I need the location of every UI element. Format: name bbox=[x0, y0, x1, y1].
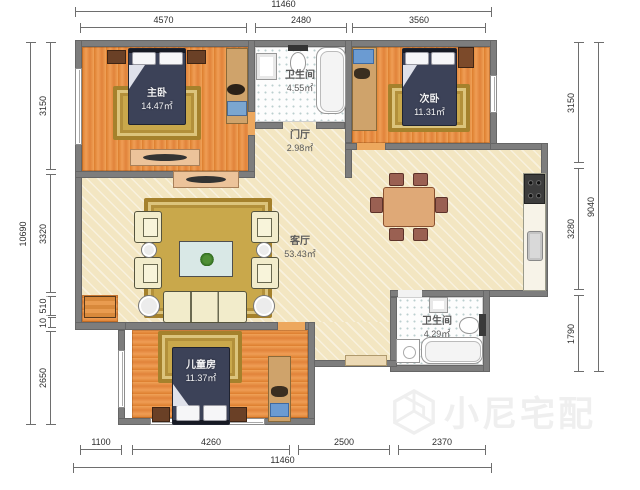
bath2-toilet-tank bbox=[479, 314, 486, 336]
dim-top-seg-2: 2480 bbox=[255, 27, 347, 28]
bath2-door-threshold bbox=[398, 290, 422, 297]
dim-right-overall: 9040 bbox=[598, 42, 599, 372]
dim-right-seg-2-value: 3280 bbox=[566, 217, 576, 241]
wall-kitchen-top bbox=[490, 143, 548, 150]
kids-nightstand-right bbox=[229, 407, 247, 422]
wall-second-bottom-b bbox=[385, 143, 497, 150]
wall-kids-top-a bbox=[125, 322, 278, 330]
kitchen-sink bbox=[527, 231, 543, 261]
kids-door-threshold bbox=[278, 322, 305, 330]
watermark-text: 小尼宅配 bbox=[444, 386, 596, 437]
second-wardrobe-item bbox=[354, 68, 370, 79]
washing-machine bbox=[396, 339, 420, 363]
second-door-threshold bbox=[357, 143, 385, 150]
kids-left-window bbox=[118, 350, 125, 408]
second-bed bbox=[402, 48, 457, 126]
master-nightstand-right bbox=[187, 50, 206, 64]
dim-top-seg-1-value: 4570 bbox=[151, 15, 175, 25]
second-pillow-right bbox=[431, 52, 455, 65]
kitchen-stove bbox=[524, 174, 545, 204]
kids-wardrobe-item bbox=[271, 386, 288, 397]
dim-left-seg-5: 2650 bbox=[50, 331, 51, 425]
armchair-bottom-right bbox=[251, 257, 279, 289]
dining-chair-bottom-right bbox=[413, 228, 428, 241]
second-pillow-left bbox=[405, 52, 429, 65]
bath-top-bathtub-inner bbox=[320, 51, 344, 112]
wall-master-right-upper bbox=[248, 40, 255, 112]
corner-table-left bbox=[138, 295, 160, 317]
master-pillow-right bbox=[159, 52, 183, 65]
master-tv bbox=[143, 154, 187, 161]
bath-top-toilet bbox=[290, 52, 306, 73]
master-pillow-left bbox=[132, 52, 156, 65]
kids-bed bbox=[172, 347, 230, 425]
master-desk-chair bbox=[227, 84, 245, 95]
watermark: 小尼宅配 bbox=[390, 386, 596, 437]
dim-top-seg-3: 3560 bbox=[352, 27, 486, 28]
second-cabinet bbox=[458, 47, 474, 68]
dim-left-seg-4-value: 10 bbox=[38, 315, 48, 329]
dining-chair-top-left bbox=[389, 173, 404, 186]
dim-top-seg-2-value: 2480 bbox=[289, 15, 313, 25]
dim-left-seg-3-value: 510 bbox=[38, 296, 48, 315]
dim-bottom-seg-4-value: 2370 bbox=[430, 437, 454, 447]
dim-right-overall-value: 9040 bbox=[586, 195, 596, 219]
bath-top-toilet-tank bbox=[288, 45, 308, 51]
wall-second-bottom-a bbox=[345, 143, 357, 150]
armchair-top-right bbox=[251, 211, 279, 243]
wall-bath2-bottom bbox=[390, 365, 490, 372]
foyer-floor bbox=[255, 122, 345, 178]
dim-left-overall-value: 10690 bbox=[18, 219, 28, 248]
bath2-bathtub bbox=[421, 337, 483, 364]
dim-top-seg-1: 4570 bbox=[80, 27, 247, 28]
dining-chair-bottom-left bbox=[389, 228, 404, 241]
wall-bath-top-b bbox=[316, 122, 345, 129]
dining-table bbox=[383, 187, 435, 227]
master-window bbox=[75, 68, 82, 145]
wall-kids-right bbox=[308, 322, 315, 425]
master-bed bbox=[128, 48, 186, 125]
dim-bottom-overall: 11460 bbox=[73, 467, 492, 468]
dim-top-overall-value: 11460 bbox=[269, 0, 297, 9]
kids-blanket-fold bbox=[173, 384, 189, 406]
dim-bottom-seg-3-value: 2500 bbox=[332, 437, 356, 447]
wall-kitchen-bottom bbox=[483, 290, 548, 297]
wall-top bbox=[75, 40, 497, 47]
side-table-right bbox=[256, 242, 272, 258]
dim-right-seg-3: 1790 bbox=[578, 295, 579, 372]
master-blanket-fold bbox=[129, 65, 145, 89]
dim-bottom-seg-3: 2500 bbox=[298, 449, 390, 450]
master-desk-printer bbox=[227, 101, 247, 116]
living-tv bbox=[186, 176, 226, 183]
dim-top-seg-3-value: 3560 bbox=[407, 15, 431, 25]
dim-bottom-seg-2: 4260 bbox=[132, 449, 290, 450]
dining-chair-left bbox=[370, 197, 383, 213]
master-nightstand-left bbox=[107, 50, 126, 64]
dim-left-seg-3: 510 bbox=[50, 296, 51, 316]
bath-top-bathtub bbox=[316, 47, 346, 114]
washing-machine-door bbox=[403, 346, 416, 359]
second-window bbox=[490, 75, 497, 113]
dim-bottom-seg-1: 1100 bbox=[80, 449, 122, 450]
shoe-cabinet bbox=[84, 296, 116, 318]
master-door-threshold bbox=[248, 112, 255, 135]
coffee-table bbox=[179, 241, 233, 277]
dim-left-seg-4: 10 bbox=[50, 317, 51, 328]
kids-pillow-right bbox=[203, 405, 227, 421]
dim-left-seg-1: 3150 bbox=[50, 42, 51, 170]
dim-left-seg-5-value: 2650 bbox=[38, 366, 48, 390]
entry-door-threshold bbox=[345, 355, 387, 366]
sofa bbox=[163, 291, 247, 323]
wall-alcove-bottom bbox=[75, 322, 132, 330]
kids-nightstand-left bbox=[152, 407, 170, 422]
watermark-cube-icon bbox=[390, 388, 438, 436]
dim-bottom-seg-4: 2370 bbox=[398, 449, 486, 450]
dining-chair-top-right bbox=[413, 173, 428, 186]
side-table-left bbox=[141, 242, 157, 258]
dim-right-seg-2: 3280 bbox=[578, 168, 579, 290]
wall-bath-top-a bbox=[255, 122, 283, 129]
bath2-sink bbox=[429, 297, 448, 313]
second-wardrobe-box bbox=[353, 49, 374, 64]
dim-left-seg-2-value: 3320 bbox=[38, 221, 48, 245]
dim-bottom-seg-2-value: 4260 bbox=[199, 437, 223, 447]
corner-table-right bbox=[253, 295, 275, 317]
dim-bottom-seg-1-value: 1100 bbox=[89, 437, 112, 447]
kids-wardrobe-box bbox=[270, 403, 289, 417]
dim-top-overall: 11460 bbox=[75, 11, 492, 12]
dim-right-seg-1: 3150 bbox=[578, 42, 579, 163]
kids-pillow-left bbox=[176, 405, 200, 421]
dim-right-seg-3-value: 1790 bbox=[566, 321, 576, 345]
bath-top-sink bbox=[256, 53, 277, 80]
dim-left-overall: 10690 bbox=[30, 42, 31, 425]
coffee-table-plant bbox=[200, 253, 214, 266]
dim-right-seg-1-value: 3150 bbox=[566, 90, 576, 114]
second-blanket-fold bbox=[403, 65, 417, 87]
bath2-bathtub-inner bbox=[425, 341, 481, 362]
dining-chair-right bbox=[435, 197, 448, 213]
bath2-toilet bbox=[459, 317, 479, 334]
dim-left-seg-1-value: 3150 bbox=[38, 94, 48, 118]
dim-bottom-overall-value: 11460 bbox=[268, 455, 296, 465]
wall-bath-second bbox=[345, 40, 352, 143]
armchair-top-left bbox=[134, 211, 162, 243]
armchair-bottom-left bbox=[134, 257, 162, 289]
outside-patch bbox=[490, 297, 548, 322]
floor-plan-canvas: 主卧 14.47㎡ 卫生间 4.55㎡ 次卧 11.31㎡ 门厅 2.98㎡ 客… bbox=[0, 0, 640, 490]
dim-left-seg-2: 3320 bbox=[50, 174, 51, 293]
